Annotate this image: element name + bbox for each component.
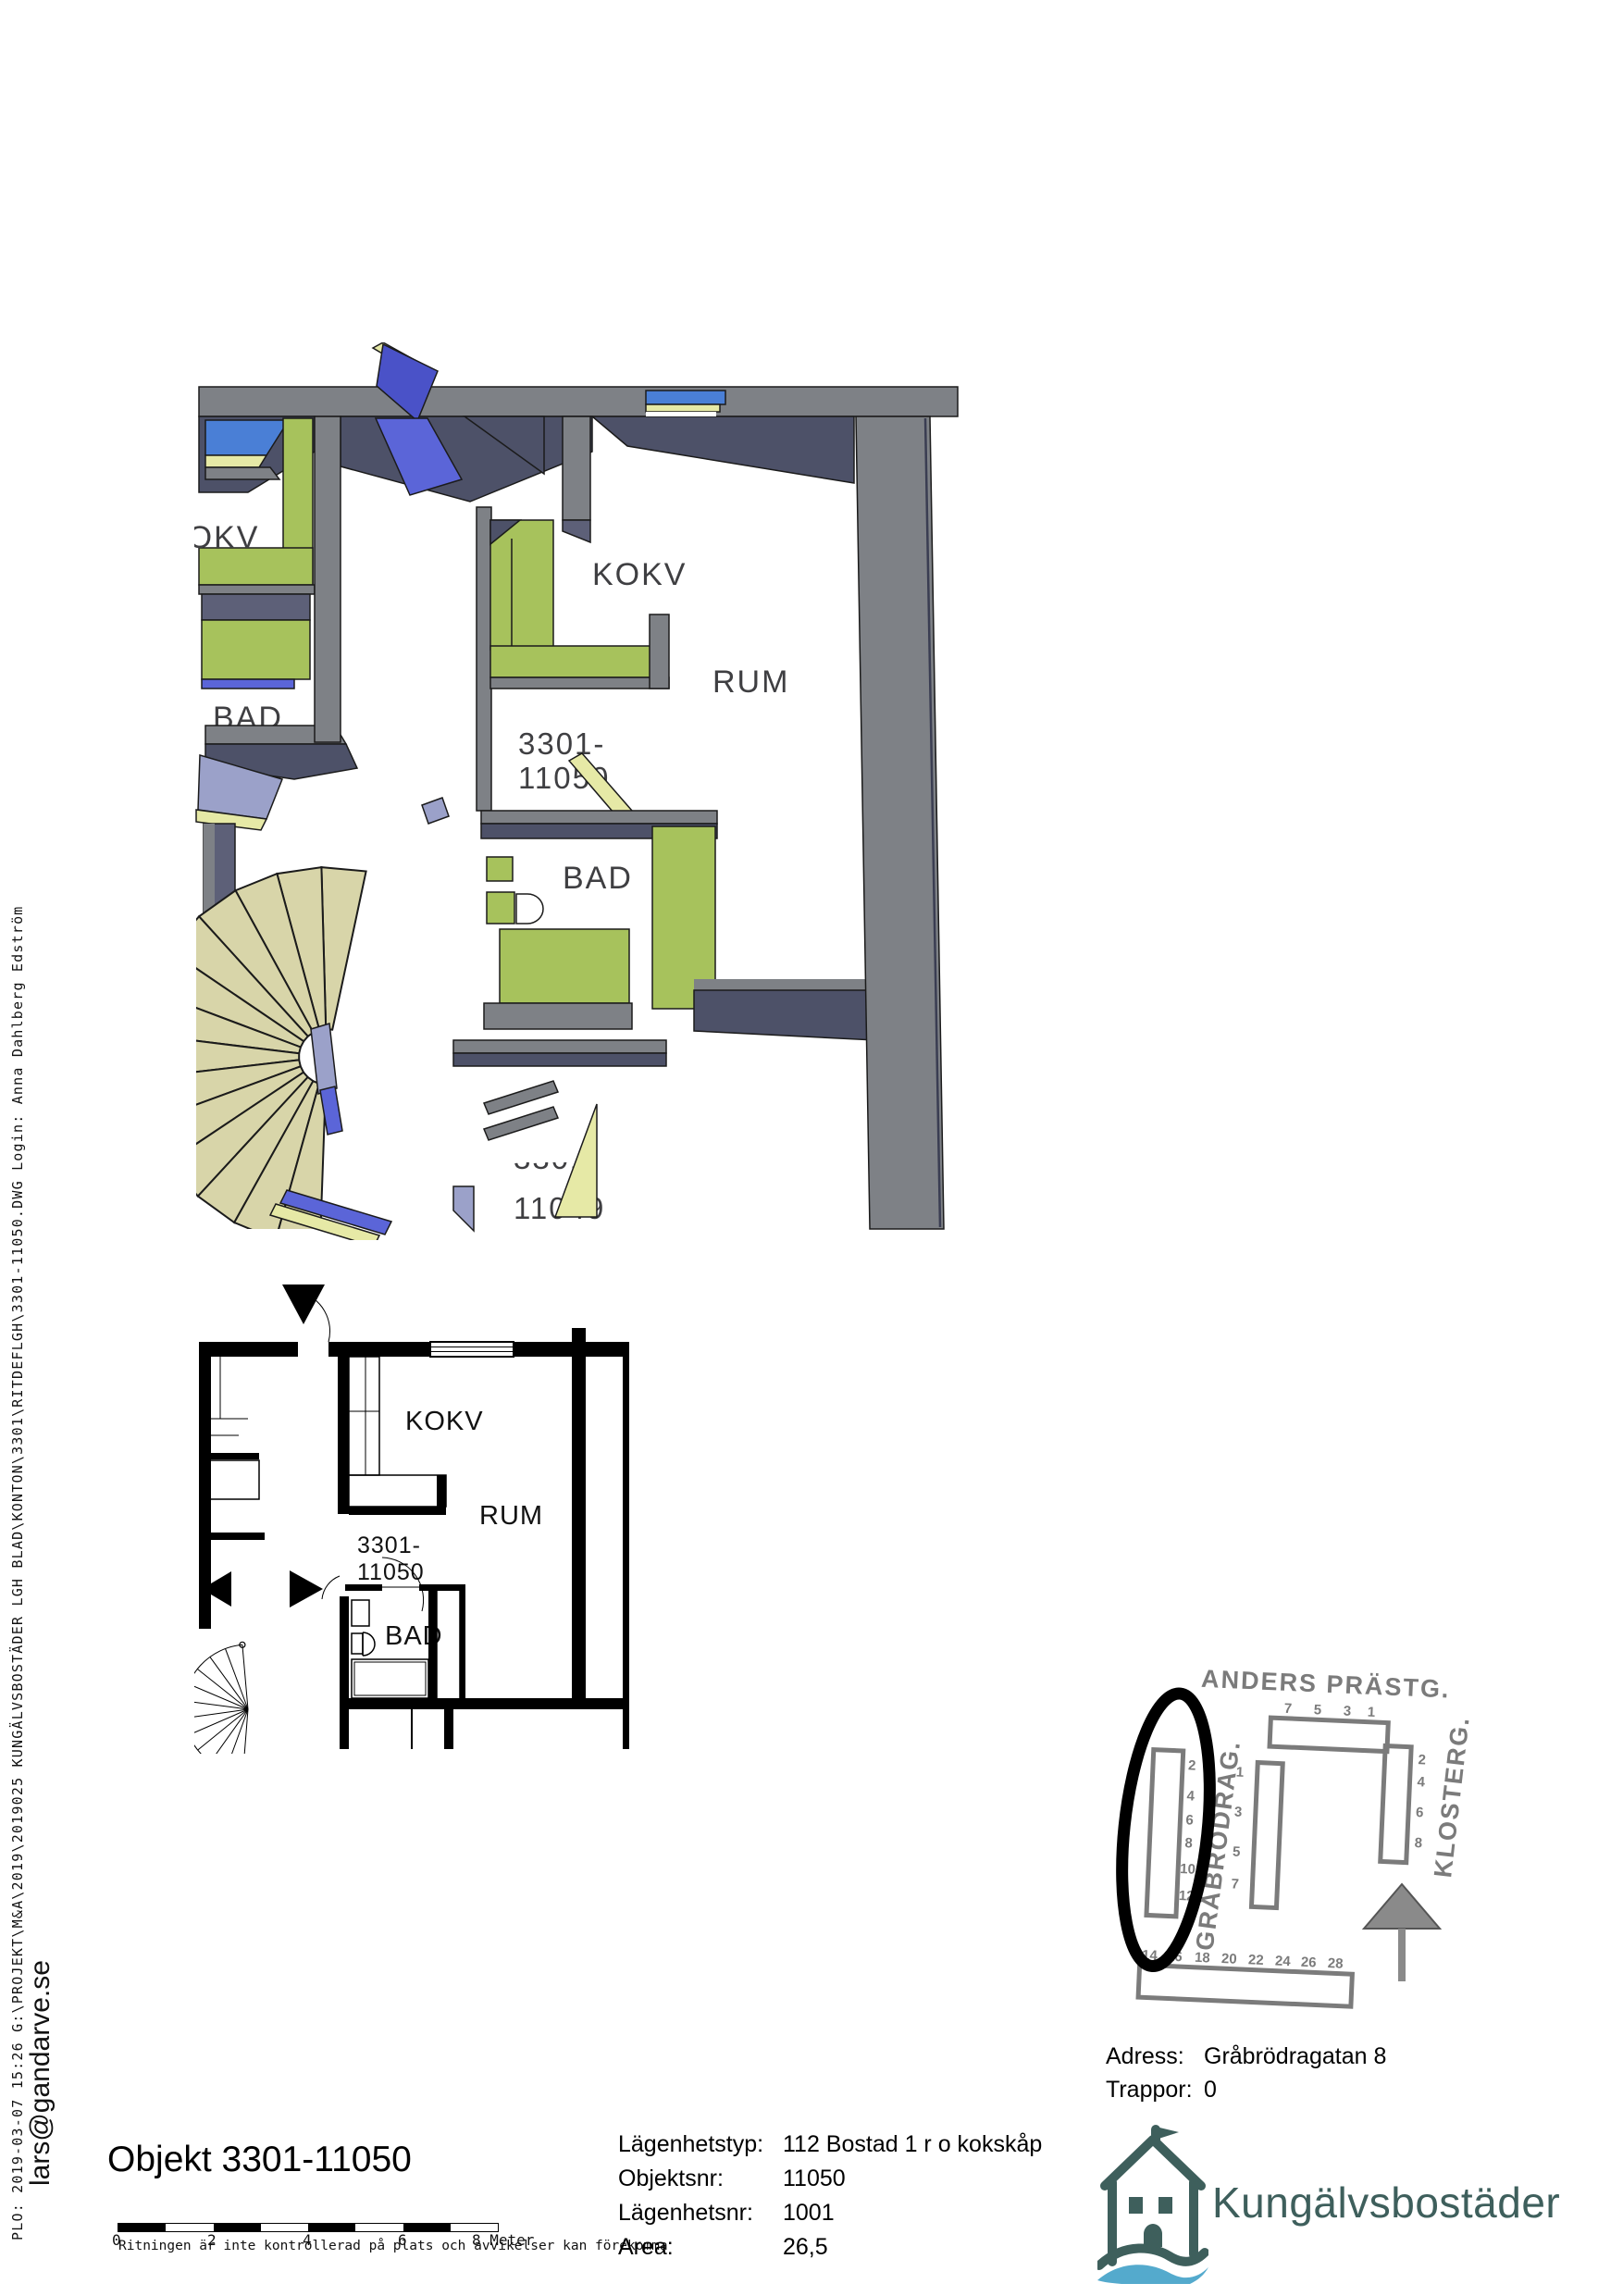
site-map: ANDERS PRÄSTG. 7 5 3 1 2 4 6 8 KLOSTERG.… [1078,1559,1541,2022]
plot-file-info: PLO: 2019-03-07 15:26 G:\PROJEKT\M&A\201… [9,905,26,2240]
floor-plan-3d: KOKV BAD 3301- 11050 KOKV RUM [194,342,962,1240]
street-label-klosterg: KLOSTERG. [1429,1715,1475,1880]
arrow-right-icon [290,1570,323,1607]
disclaimer-text: Ritningen är inte kontrollerad på plats … [118,2239,668,2253]
kokv-room: KOKV RUM [490,520,789,700]
right-wall [856,416,944,1229]
house-number: 7 [1231,1876,1239,1892]
house-number: 5 [1233,1843,1241,1859]
building-right [1381,1746,1411,1863]
north-arrow-icon [1364,1884,1440,1981]
detail-label: Area: [618,2234,783,2261]
detail-value: 26,5 [783,2234,828,2261]
room-label-kokv: KOKV [592,557,687,592]
address-value: Gråbrödragatan 8 [1204,2043,1386,2070]
detail-value: 1001 [783,2200,835,2227]
house-number: 28 [1328,1955,1344,1972]
spiral-staircase-2d [194,1642,248,1754]
room-label-rum: RUM [712,664,789,700]
apartment-number-line1: 3301- [518,726,605,761]
house-number: 5 [1313,1702,1321,1718]
house-number: 20 [1221,1951,1237,1967]
address-label: Adress: [1106,2043,1204,2070]
building-highlighted [1146,1750,1183,1917]
house-number: 18 [1195,1950,1210,1967]
wall [315,416,341,742]
address-block: Adress: Gråbrödragatan 8 Trappor: 0 [1106,2043,1386,2110]
apartment-number-line2: 11050 [357,1559,425,1585]
apartment-details: Lägenhetstyp: 112 Bostad 1 r o kokskåp O… [618,2131,1042,2268]
entrance-arrow-icon [282,1285,325,1324]
house-number: 22 [1248,1952,1264,1968]
neighbor-apartment: 3301- 11049 [453,1081,614,1231]
floor-label: Trappor: [1106,2077,1204,2104]
spiral-staircase-3d [194,867,366,1240]
room-label-kokv: KOKV [405,1407,484,1436]
apartment-number-line1: 3301- [357,1533,421,1558]
toilet-icon [363,1632,375,1656]
bad-room: BAD [481,811,717,1029]
company-logo-text: Kungälvsbostäder [1212,2178,1560,2228]
room-label-rum: RUM [479,1501,543,1531]
detail-label: Lägenhetstyp: [618,2131,783,2158]
house-number: 2 [1418,1752,1426,1768]
shower-icon [352,1659,428,1698]
house-number: 7 [1283,1701,1292,1717]
house-number: 24 [1275,1954,1292,1970]
house-number: 6 [1416,1805,1424,1820]
company-logo-icon [1097,2125,1208,2284]
room-label-kokv-left: KOKV [194,520,259,555]
detail-value: 11050 [783,2166,846,2192]
wall [477,507,491,811]
room-label-bad: BAD [563,861,633,896]
kitchen-counter [490,646,662,677]
floor-value: 0 [1204,2077,1217,2104]
detail-label: Lägenhetsnr: [618,2200,783,2227]
detail-label: Objektsnr: [618,2166,783,2192]
building-bottom [1138,1965,1352,2006]
house-number: 1 [1367,1705,1375,1720]
building-middle [1251,1763,1282,1908]
sink-icon [352,1600,369,1626]
window-top-icon [646,391,725,416]
wall [563,416,590,520]
door-swing-arc [322,1576,340,1599]
house-number: 8 [1414,1835,1422,1851]
house-number: 8 [1184,1835,1193,1851]
author-email: lars@gandarve.se [25,1960,56,2186]
house-number: 26 [1301,1955,1317,1971]
building-top [1270,1718,1388,1752]
toilet-icon [516,894,543,924]
house-number: 4 [1186,1788,1196,1804]
house-number: 3 [1343,1704,1351,1719]
object-title: Objekt 3301-11050 [107,2140,412,2180]
kitchen-cabinet [490,520,553,650]
house-number: 4 [1417,1774,1426,1790]
drawing-sheet: PLO: 2019-03-07 15:26 G:\PROJEKT\M&A\201… [0,0,1623,2296]
house-number: 2 [1188,1757,1196,1773]
house-number: 6 [1185,1812,1194,1828]
street-label-anders-prastg: ANDERS PRÄSTG. [1201,1665,1452,1704]
house-number: 10 [1180,1861,1196,1878]
detail-value: 112 Bostad 1 r o kokskåp [783,2131,1042,2158]
floor-plan-2d: KOKV RUM 3301- 11050 BAD [194,1282,685,1754]
